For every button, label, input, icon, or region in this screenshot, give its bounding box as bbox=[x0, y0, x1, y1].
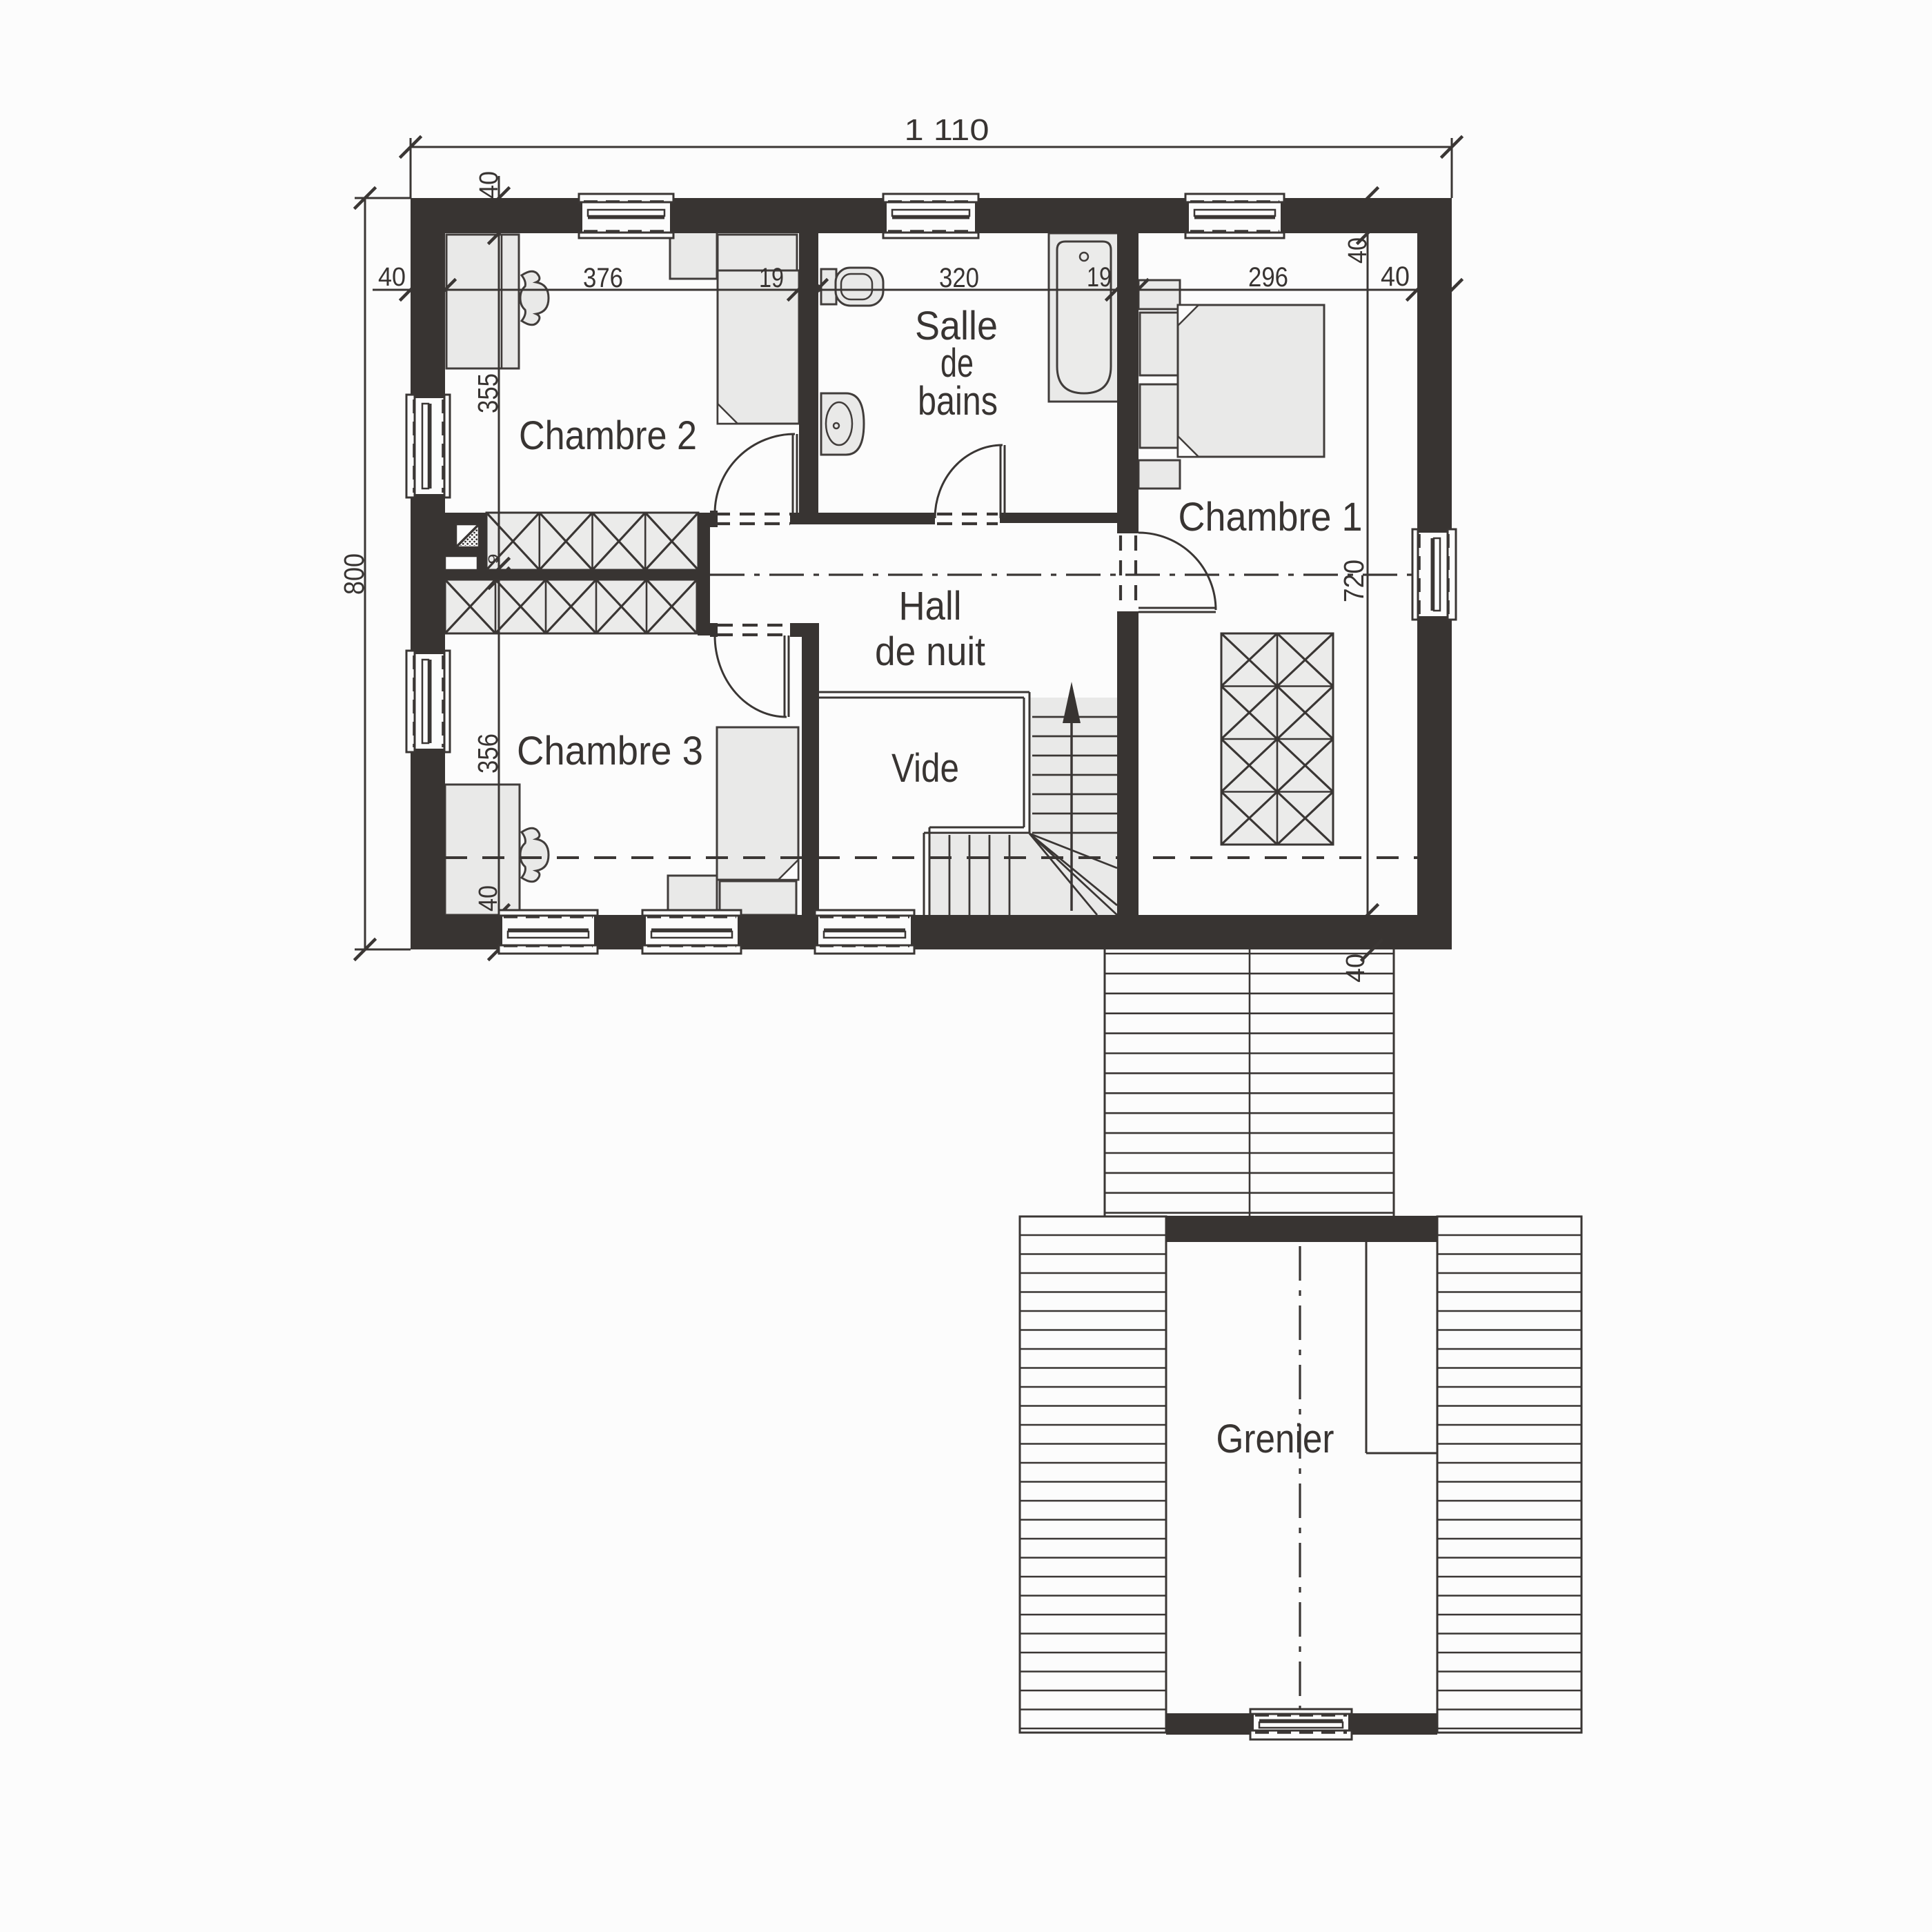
svg-text:320: 320 bbox=[939, 263, 979, 293]
svg-text:Vide: Vide bbox=[891, 746, 959, 791]
svg-text:40: 40 bbox=[474, 885, 503, 911]
svg-text:40: 40 bbox=[1341, 954, 1370, 983]
svg-text:9: 9 bbox=[486, 554, 502, 564]
svg-text:1 110: 1 110 bbox=[905, 113, 989, 147]
svg-text:376: 376 bbox=[583, 263, 623, 293]
svg-text:355: 355 bbox=[472, 373, 504, 413]
svg-text:Chambre 2: Chambre 2 bbox=[519, 413, 697, 458]
svg-text:356: 356 bbox=[472, 733, 504, 773]
svg-text:Hall: Hall bbox=[899, 584, 962, 629]
svg-text:40: 40 bbox=[1381, 262, 1410, 292]
svg-text:de nuit: de nuit bbox=[875, 629, 985, 674]
svg-text:800: 800 bbox=[338, 553, 370, 595]
svg-text:19: 19 bbox=[759, 263, 784, 293]
svg-text:Chambre 3: Chambre 3 bbox=[517, 729, 703, 773]
svg-text:40: 40 bbox=[1343, 237, 1372, 264]
svg-text:296: 296 bbox=[1248, 262, 1288, 293]
svg-text:Chambre 1: Chambre 1 bbox=[1179, 495, 1363, 540]
svg-text:40: 40 bbox=[475, 171, 504, 199]
svg-text:40: 40 bbox=[378, 263, 406, 292]
svg-text:720: 720 bbox=[1338, 560, 1370, 602]
svg-text:bains: bains bbox=[918, 379, 998, 424]
svg-text:19: 19 bbox=[1087, 262, 1112, 293]
svg-text:Grenier: Grenier bbox=[1216, 1417, 1334, 1461]
